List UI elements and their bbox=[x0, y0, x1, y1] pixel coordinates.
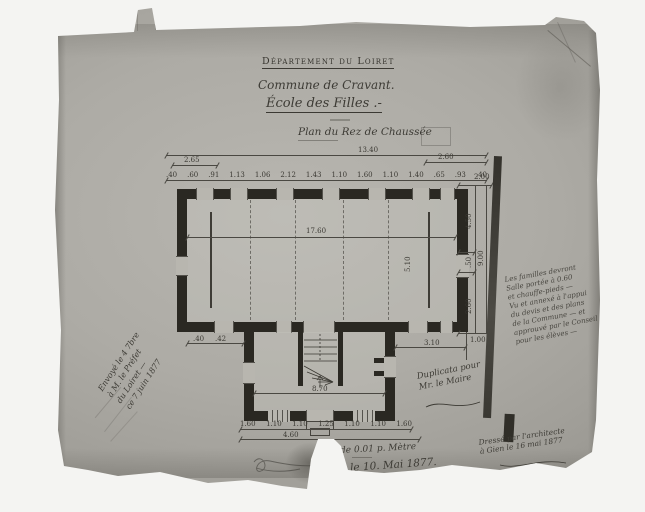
dim-line-bottom-overall bbox=[240, 439, 420, 440]
ceiling-joist-line bbox=[343, 200, 344, 320]
dim-line-top-left bbox=[172, 165, 218, 166]
dim-right-top: 2.00 bbox=[474, 173, 490, 181]
dim-line-right-inner bbox=[475, 185, 476, 333]
dim-chain-value: .93 bbox=[455, 171, 466, 179]
dim-chain-value: 1.10 bbox=[331, 171, 347, 179]
ceiling-joist-line bbox=[250, 200, 251, 320]
torn-tab-edge bbox=[137, 9, 138, 31]
scale-note: de 0.01 p. Mètre bbox=[340, 442, 417, 456]
paper-sheet: Département du Loiret Commune de Cravant… bbox=[0, 0, 645, 512]
title-commune: Commune de Cravant. bbox=[258, 78, 395, 92]
corner-crease-line bbox=[557, 22, 576, 63]
note-bottom-right: Dressé par l'architecteà Gien le 16 mai … bbox=[478, 421, 603, 456]
dim-chain-value: 1.10 bbox=[383, 171, 399, 179]
dim-annex-left-b: .42 bbox=[215, 335, 226, 343]
dim-chain-value: 1.10 bbox=[370, 420, 386, 428]
dim-bottom-overall: 4.60 bbox=[283, 431, 299, 439]
title-dash-mark bbox=[330, 119, 350, 121]
faint-pencil-sketch bbox=[421, 127, 451, 146]
main-room-floor bbox=[187, 199, 457, 322]
dim-line-chain-bottom bbox=[240, 429, 412, 430]
dim-ref-line bbox=[466, 332, 467, 360]
dim-room-width: 5.10 bbox=[404, 246, 412, 272]
window-opening bbox=[368, 188, 386, 200]
window-opening bbox=[440, 188, 455, 200]
window-opening bbox=[412, 188, 430, 200]
dim-annex-right-offset: 3.10 bbox=[424, 339, 440, 347]
window-opening bbox=[196, 188, 214, 200]
dim-chain-value: .91 bbox=[208, 171, 219, 179]
window-opening bbox=[176, 256, 188, 276]
dim-chain-value: 1.60 bbox=[396, 420, 412, 428]
dim-right-overall: 9.00 bbox=[477, 240, 485, 266]
plan-title: Plan du Rez de Chaussée bbox=[298, 126, 432, 138]
pencil-stroke bbox=[110, 411, 138, 441]
dim-chain-value: 1.10 bbox=[266, 420, 282, 428]
dim-chain-bottom: 1.601.101.101.251.101.101.60 bbox=[240, 420, 412, 428]
left-edge-shade bbox=[52, 30, 66, 470]
title-department: Département du Loiret bbox=[262, 56, 394, 69]
interior-fixture-mark bbox=[374, 358, 384, 363]
dim-tick bbox=[458, 252, 475, 253]
dim-overall-top: 13.40 bbox=[358, 146, 378, 154]
window-opening bbox=[214, 321, 234, 333]
window-opening bbox=[230, 188, 248, 200]
dim-chain-value: 1.13 bbox=[229, 171, 245, 179]
dim-top-right: 2.60 bbox=[438, 153, 454, 161]
dim-chain-value: .60 bbox=[187, 171, 198, 179]
dim-chain-value: 1.06 bbox=[255, 171, 271, 179]
window-opening bbox=[276, 188, 294, 200]
note-left-diagonal: Envoyé le 4 7breà M. le Préfetdu Loiret … bbox=[96, 277, 205, 412]
dim-line-chain-top bbox=[166, 180, 487, 181]
dim-top-left: 2.65 bbox=[184, 156, 200, 164]
dim-line-annex-right bbox=[395, 347, 466, 348]
dim-chain-value: 1.60 bbox=[357, 171, 373, 179]
window-opening bbox=[243, 362, 255, 384]
dim-chain-value: .65 bbox=[434, 171, 445, 179]
plan-title-underline bbox=[298, 140, 338, 141]
dim-chain-value: 1.25 bbox=[318, 420, 334, 428]
window-opening bbox=[408, 321, 428, 333]
dim-line-annex-width bbox=[254, 393, 385, 394]
interior-partition-mark bbox=[210, 212, 212, 308]
note-right-margin: Les familles devrontSalle portée à 0.60e… bbox=[504, 259, 611, 347]
photograph-of-plan: Département du Loiret Commune de Cravant… bbox=[0, 0, 645, 512]
dim-right-sub-lower: 2.60 bbox=[465, 290, 473, 314]
interior-fixture-mark bbox=[374, 371, 384, 376]
top-edge-shade bbox=[0, 24, 645, 58]
dim-annex-left-a: .40 bbox=[193, 335, 204, 343]
stair-wall-right bbox=[338, 332, 343, 386]
dim-tick bbox=[458, 272, 475, 273]
signature-flourish bbox=[348, 472, 448, 492]
dim-chain-value: 1.10 bbox=[344, 420, 360, 428]
dim-annex-width: 8.70 bbox=[312, 385, 328, 393]
stain-top-right bbox=[500, 40, 600, 160]
pencil-scribble bbox=[248, 450, 318, 476]
right-edge-shade bbox=[588, 30, 600, 460]
ceiling-joist-line bbox=[295, 200, 296, 320]
dim-chain-value: 2.12 bbox=[280, 171, 296, 179]
dim-chain-top: .40.60.911.131.062.121.431.101.601.101.4… bbox=[166, 171, 487, 179]
bottom-right-flourish bbox=[498, 458, 570, 470]
torn-tab-edge bbox=[155, 8, 156, 30]
window-opening bbox=[440, 321, 453, 333]
dim-right-bottom: 1.00 bbox=[470, 336, 486, 344]
window-opening bbox=[384, 356, 396, 378]
title-school: École des Filles .- bbox=[266, 96, 382, 113]
dim-chain-value: 1.43 bbox=[306, 171, 322, 179]
duplicata-flourish bbox=[424, 398, 484, 412]
dim-room-length: 17.60 bbox=[306, 227, 326, 235]
dim-chain-value: 1.10 bbox=[292, 420, 308, 428]
scale-underline bbox=[352, 457, 372, 458]
ceiling-joist-line bbox=[388, 200, 389, 320]
window-opening bbox=[322, 188, 340, 200]
dim-right-sub-upper: 4.50 bbox=[465, 205, 473, 229]
staircase bbox=[303, 332, 338, 390]
dim-chain-value: 1.40 bbox=[408, 171, 424, 179]
dim-line-room-length bbox=[187, 237, 456, 238]
dim-line-annex-left bbox=[187, 343, 244, 344]
interior-partition-mark bbox=[428, 212, 430, 308]
dim-line-top-right bbox=[425, 162, 487, 163]
note-duplicata: Duplicata pourMr. le Maire bbox=[416, 354, 511, 393]
